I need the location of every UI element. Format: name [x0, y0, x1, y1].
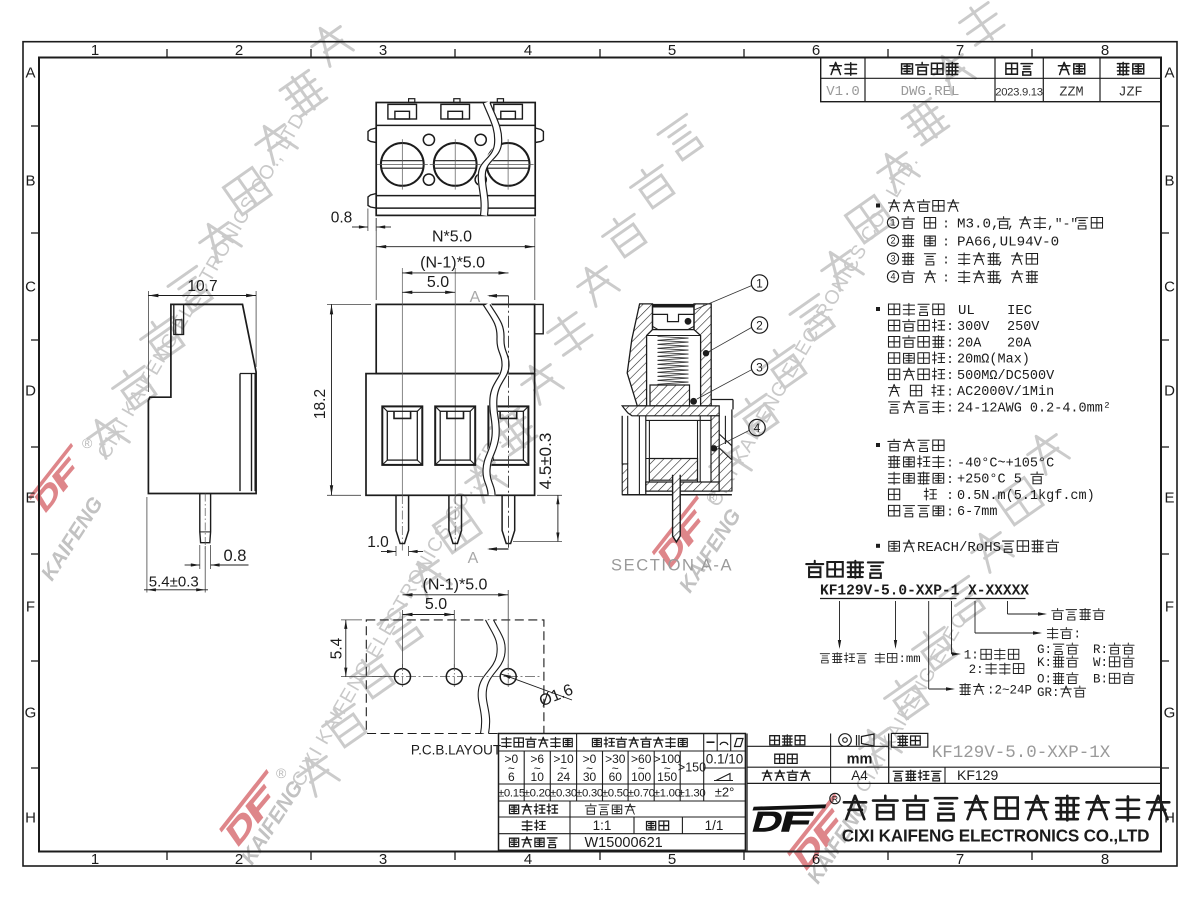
svg-text::: :: [946, 472, 954, 487]
svg-text:20mΩ(Max): 20mΩ(Max): [957, 353, 1030, 368]
svg-text:W:: W:: [1093, 656, 1108, 670]
svg-text:1/1: 1/1: [705, 818, 724, 833]
svg-text:REACH/RoHS: REACH/RoHS: [917, 540, 1001, 556]
svg-text:1:: 1:: [964, 649, 979, 663]
svg-text:20A: 20A: [1007, 336, 1032, 351]
svg-text:±0.15: ±0.15: [498, 788, 525, 800]
svg-text:10: 10: [531, 770, 545, 784]
svg-text:IEC: IEC: [1007, 303, 1032, 319]
svg-text:KF129: KF129: [957, 767, 998, 783]
svg-text:100: 100: [631, 770, 651, 784]
svg-text:ZZM: ZZM: [1059, 86, 1083, 101]
svg-text:D: D: [1164, 383, 1175, 400]
svg-text::mm: :mm: [899, 652, 921, 666]
svg-text:>150: >150: [678, 761, 706, 775]
svg-text:0.5N.m(5.1kgf.cm): 0.5N.m(5.1kgf.cm): [957, 489, 1095, 504]
svg-text:30: 30: [583, 770, 597, 784]
svg-text:2: 2: [235, 42, 243, 59]
svg-text:PA66,UL94V-0: PA66,UL94V-0: [957, 235, 1059, 251]
svg-text:1: 1: [91, 851, 99, 868]
svg-text:2: 2: [890, 236, 895, 246]
svg-text:0.8: 0.8: [224, 547, 247, 565]
svg-text:±0.70: ±0.70: [628, 788, 655, 800]
svg-text:,: ,: [997, 271, 1005, 286]
svg-text:A4: A4: [851, 768, 868, 783]
svg-text:1: 1: [91, 42, 99, 59]
svg-text:4: 4: [524, 851, 532, 868]
svg-text:(N-1)*5.0: (N-1)*5.0: [423, 576, 488, 593]
svg-text:(N-1)*5.0: (N-1)*5.0: [420, 255, 485, 272]
svg-text:C: C: [25, 279, 36, 296]
svg-text:R: R: [832, 794, 838, 804]
svg-text:8: 8: [1101, 42, 1109, 59]
svg-text:2:: 2:: [969, 663, 984, 677]
svg-text:±0.50: ±0.50: [602, 788, 629, 800]
svg-text:3: 3: [756, 361, 763, 375]
svg-text:±1.30: ±1.30: [679, 788, 706, 800]
svg-text:CIXI KAIFENG ELECTRONICS CO.,L: CIXI KAIFENG ELECTRONICS CO.,LTD: [842, 827, 1150, 846]
svg-text:5.0: 5.0: [425, 596, 447, 613]
svg-text:10.7: 10.7: [187, 278, 217, 295]
svg-text:20A: 20A: [957, 336, 982, 351]
svg-text:500MΩ/DC500V: 500MΩ/DC500V: [957, 369, 1055, 384]
svg-text::: :: [946, 319, 954, 334]
svg-text:6: 6: [812, 42, 820, 59]
svg-text::: :: [946, 336, 954, 351]
svg-text::: :: [946, 488, 954, 503]
svg-text:±2°: ±2°: [715, 785, 735, 800]
svg-text:,: ,: [1007, 217, 1015, 232]
svg-text:V1.0: V1.0: [826, 84, 860, 100]
svg-text:1:1: 1:1: [593, 818, 612, 833]
svg-text:24: 24: [557, 770, 571, 784]
svg-text:6: 6: [508, 770, 515, 784]
svg-text:P.C.B.LAYOUT: P.C.B.LAYOUT: [411, 743, 501, 758]
svg-text:±0.30: ±0.30: [576, 788, 603, 800]
svg-text:H: H: [25, 810, 36, 827]
svg-text:8: 8: [1101, 851, 1109, 868]
svg-text:5: 5: [668, 42, 676, 59]
svg-text:E: E: [25, 490, 35, 507]
svg-text:18.2: 18.2: [312, 389, 329, 419]
svg-text:G: G: [1164, 705, 1176, 722]
svg-text:1.0: 1.0: [367, 534, 389, 551]
svg-text:,: ,: [997, 253, 1005, 268]
svg-text:A: A: [468, 550, 479, 567]
svg-text:A: A: [1164, 65, 1174, 82]
svg-text:5.0: 5.0: [427, 274, 449, 291]
svg-text::: :: [946, 401, 954, 416]
svg-text:1: 1: [756, 277, 763, 291]
svg-text:+250°C 5: +250°C 5: [957, 473, 1022, 488]
svg-text::: :: [942, 271, 950, 286]
svg-text:6: 6: [812, 851, 820, 868]
svg-text:®: ®: [276, 765, 287, 781]
svg-text::: :: [942, 253, 950, 268]
svg-text:60: 60: [609, 770, 623, 784]
svg-text:D: D: [25, 383, 36, 400]
svg-text:B: B: [25, 173, 35, 190]
svg-text:W15000621: W15000621: [585, 835, 663, 851]
svg-text:GR:: GR:: [1037, 686, 1060, 700]
svg-text:7: 7: [956, 851, 964, 868]
svg-text::: :: [946, 456, 954, 471]
svg-text:±1.00: ±1.00: [654, 788, 681, 800]
svg-text:F: F: [1165, 599, 1174, 616]
svg-text::: :: [1074, 628, 1082, 642]
svg-text:3: 3: [890, 254, 895, 264]
svg-text:±0.20: ±0.20: [524, 788, 551, 800]
svg-text:M3.0,: M3.0,: [957, 217, 1000, 233]
svg-text:7: 7: [956, 42, 964, 59]
svg-text:N*5.0: N*5.0: [432, 229, 472, 246]
svg-text:2023.9.13: 2023.9.13: [995, 87, 1043, 99]
svg-text:,"-": ,"-": [1047, 217, 1078, 232]
svg-text:A: A: [470, 289, 481, 306]
svg-text:2: 2: [756, 319, 763, 333]
svg-text:5: 5: [668, 851, 676, 868]
svg-text:0.8: 0.8: [331, 210, 353, 227]
svg-text:B: B: [1164, 173, 1174, 190]
svg-text:F: F: [26, 599, 35, 616]
svg-text:R:: R:: [1093, 643, 1108, 657]
svg-text:150: 150: [657, 770, 677, 784]
svg-text::: :: [946, 384, 954, 399]
svg-text:G:: G:: [1037, 643, 1052, 657]
svg-text:B:: B:: [1093, 673, 1108, 687]
svg-text:DWG.REL: DWG.REL: [901, 84, 960, 100]
svg-text:AC2000V/1Min: AC2000V/1Min: [957, 385, 1054, 400]
svg-text:3: 3: [379, 851, 387, 868]
svg-text::2~24P: :2~24P: [987, 684, 1032, 698]
svg-text::: :: [942, 217, 950, 232]
svg-text:300V: 300V: [957, 320, 990, 335]
svg-text:mm: mm: [847, 752, 873, 768]
svg-text:G: G: [25, 705, 37, 722]
svg-text:6-7mm: 6-7mm: [957, 505, 998, 520]
svg-text:2: 2: [235, 851, 243, 868]
svg-text:3: 3: [379, 42, 387, 59]
svg-text:A: A: [25, 65, 35, 82]
svg-text:5.4±0.3: 5.4±0.3: [149, 574, 199, 591]
svg-text:O:: O:: [1037, 673, 1052, 687]
svg-text:250V: 250V: [1007, 320, 1040, 335]
svg-text:5.4: 5.4: [329, 637, 346, 659]
svg-text:24-12AWG 0.2-4.0mm²: 24-12AWG 0.2-4.0mm²: [957, 401, 1111, 416]
svg-text:E: E: [1164, 490, 1174, 507]
svg-text:SECTION A-A: SECTION A-A: [611, 557, 733, 575]
svg-text:UL: UL: [958, 303, 975, 319]
svg-text:0.1/10: 0.1/10: [706, 752, 744, 767]
svg-text:4.5±0.3: 4.5±0.3: [536, 433, 555, 490]
svg-text:JZF: JZF: [1118, 86, 1142, 101]
svg-text:-40°C~+105°C: -40°C~+105°C: [957, 456, 1054, 471]
svg-text:±0.30: ±0.30: [550, 788, 577, 800]
svg-text::: :: [946, 352, 954, 367]
svg-text:KF129V-5.0-XXP-1 X-XXXXX: KF129V-5.0-XXP-1 X-XXXXX: [820, 584, 1029, 600]
svg-text:KF129V-5.0-XXP-1X: KF129V-5.0-XXP-1X: [932, 743, 1111, 763]
svg-text:4: 4: [754, 421, 761, 435]
svg-text:4: 4: [890, 272, 895, 282]
svg-text::: :: [946, 504, 954, 519]
svg-text:4: 4: [524, 42, 532, 59]
svg-text:C: C: [1164, 279, 1175, 296]
svg-text:K:: K:: [1037, 656, 1052, 670]
svg-text::: :: [946, 368, 954, 383]
svg-text:1: 1: [890, 218, 895, 228]
svg-text::: :: [942, 235, 950, 250]
